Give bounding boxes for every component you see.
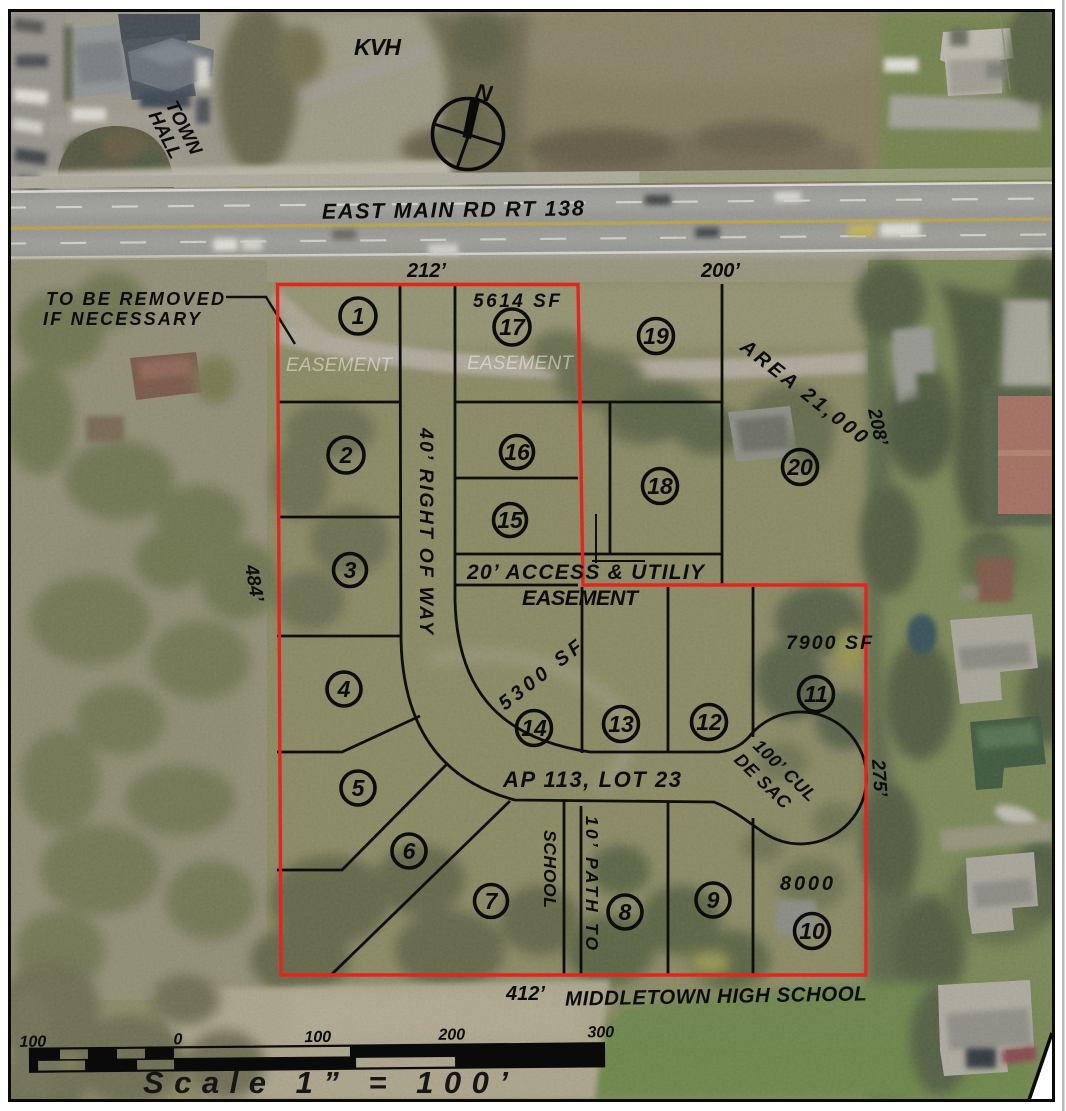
svg-text:18: 18	[647, 473, 673, 499]
svg-text:7: 7	[485, 888, 499, 914]
svg-text:200: 200	[437, 1027, 465, 1044]
svg-text:300: 300	[587, 1024, 614, 1041]
svg-text:412’: 412’	[505, 983, 545, 1005]
svg-text:TO BE REMOVED: TO BE REMOVED	[46, 289, 224, 309]
svg-text:20: 20	[786, 454, 813, 480]
svg-text:17: 17	[499, 314, 526, 340]
svg-text:2: 2	[339, 442, 353, 468]
svg-text:15: 15	[497, 507, 524, 533]
svg-text:275’: 275’	[867, 758, 891, 798]
svg-text:9: 9	[707, 887, 720, 913]
svg-text:7900 SF: 7900 SF	[786, 632, 873, 654]
svg-text:0: 0	[173, 1031, 182, 1048]
svg-text:13: 13	[608, 711, 634, 737]
svg-text:14: 14	[521, 715, 547, 741]
svg-text:5614 SF: 5614 SF	[473, 291, 561, 312]
svg-text:19: 19	[643, 323, 669, 349]
svg-text:EASEMENT: EASEMENT	[286, 355, 393, 376]
svg-text:11: 11	[804, 681, 828, 707]
svg-text:212’: 212’	[406, 260, 446, 282]
svg-text:EASEMENT: EASEMENT	[522, 586, 640, 610]
svg-text:100: 100	[304, 1029, 331, 1046]
svg-text:KVH: KVH	[354, 34, 401, 60]
svg-text:200’: 200’	[700, 260, 740, 282]
svg-text:EASEMENT: EASEMENT	[467, 353, 574, 374]
svg-text:AP 113, LOT 23: AP 113, LOT 23	[502, 767, 681, 792]
svg-text:1: 1	[352, 303, 365, 329]
svg-text:EAST MAIN RD RT 138: EAST MAIN RD RT 138	[322, 196, 584, 223]
svg-text:4: 4	[337, 676, 351, 702]
svg-text:20’ ACCESS & UTILIY: 20’ ACCESS & UTILIY	[466, 561, 706, 584]
svg-text:SCHOOL: SCHOOL	[540, 830, 560, 908]
svg-text:IF NECESSARY: IF NECESSARY	[43, 309, 202, 329]
svg-text:3: 3	[344, 557, 357, 583]
svg-text:10: 10	[799, 918, 825, 944]
svg-text:100: 100	[19, 1034, 46, 1051]
svg-text:5: 5	[352, 775, 366, 801]
svg-text:8: 8	[619, 899, 632, 925]
svg-text:16: 16	[504, 439, 530, 465]
svg-text:6: 6	[403, 838, 416, 864]
svg-text:12: 12	[696, 709, 722, 735]
